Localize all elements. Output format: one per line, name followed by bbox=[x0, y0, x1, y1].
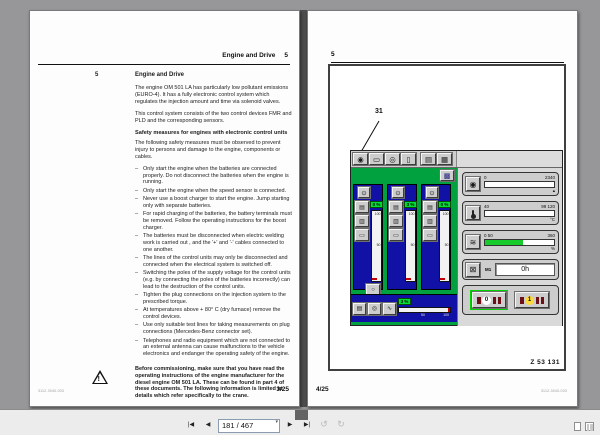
page-footer: 3112-3040-003 3/25 bbox=[38, 386, 289, 393]
bullet-item: –Only start the engine when the speed se… bbox=[135, 188, 293, 195]
bullet-item: –Never use a boost charger to start the … bbox=[135, 196, 293, 210]
hoist-icon: ◎ bbox=[385, 153, 400, 165]
control-column: ⊙ ▤ ▥ ▭ 0 % 100 bbox=[353, 184, 383, 290]
warning-icon: ! bbox=[92, 370, 108, 384]
mast-icon: ▤ bbox=[421, 153, 436, 165]
section-title: Engine and Drive bbox=[135, 72, 184, 78]
last-page-button[interactable]: ▶| bbox=[300, 417, 314, 431]
plug-icon bbox=[477, 297, 481, 304]
clutch-icon: ⊙ bbox=[426, 187, 438, 198]
clutch-icon: ⊙ bbox=[358, 187, 370, 198]
indicator-button-0: 0 bbox=[472, 292, 506, 308]
engine-speed-gauge: ◉ 0 2340 ▴ bbox=[462, 172, 559, 196]
bullet-item: –For rapid charging of the batteries, th… bbox=[135, 211, 293, 231]
plug-icon bbox=[541, 297, 545, 304]
oil-can-icon: ≋ bbox=[466, 235, 480, 249]
lever-icon: ∿ bbox=[383, 303, 396, 315]
vertical-scale: 100 50 bbox=[439, 210, 450, 282]
paragraph: The engine OM 501 LA has particularly lo… bbox=[135, 85, 293, 105]
chevron-down-icon[interactable]: ▾ bbox=[275, 419, 278, 425]
bullet-item: –Switching the poles of the supply volta… bbox=[135, 270, 293, 290]
menu-grid-icon: ▩ bbox=[440, 170, 454, 181]
running-header: Engine and Drive 5 bbox=[222, 52, 288, 59]
lever-icon: ▭ bbox=[355, 229, 369, 241]
control-column: ⊙ ▤ ▥ ▭ 0 % 100 bbox=[421, 184, 451, 290]
slew-icon: ◎ bbox=[368, 303, 381, 315]
lever-icon: ▭ bbox=[423, 229, 437, 241]
plug-icon bbox=[520, 297, 524, 304]
footer-doc-code: 3112-3040-003 bbox=[541, 389, 567, 393]
next-page-button[interactable]: ▶ bbox=[283, 417, 297, 431]
clutch-icon: ⊙ bbox=[392, 187, 404, 198]
bullet-item: –Tighten the plug connections on the inj… bbox=[135, 292, 293, 306]
percent-readout: 0 % bbox=[438, 201, 451, 208]
running-header-number: 5 bbox=[284, 52, 288, 59]
warning-block: ! Before commissioning, make sure that y… bbox=[135, 366, 293, 400]
indicator-button-1: 1 bbox=[515, 292, 549, 308]
bullet-item: –At temperatures above + 80° C (dry furn… bbox=[135, 307, 293, 321]
panel-toolbar: ◉ ▭ ◎ ▯ ▤ ▦ bbox=[351, 151, 457, 167]
vertical-scale: 100 50 bbox=[371, 210, 382, 282]
plug-icon bbox=[493, 297, 497, 304]
coolant-temperature-gauge: 40 99 120 °C bbox=[462, 201, 559, 225]
hours-label: M1 bbox=[485, 267, 491, 272]
footer-page-number: 3/25 bbox=[276, 386, 289, 393]
footer-doc-code: 3112-3040-003 bbox=[38, 389, 64, 393]
cab-icon: ▯ bbox=[401, 153, 416, 165]
winch-drum-icon: ▤ bbox=[423, 201, 437, 213]
page-left: Engine and Drive 5 5 Engine and Drive Th… bbox=[29, 10, 300, 407]
facing-pages-view-icon[interactable] bbox=[585, 422, 594, 431]
fuel-level-gauge: ≋ 0 50 360 % bbox=[462, 230, 559, 254]
safety-bullet-list: –Only start the engine when the batterie… bbox=[135, 166, 293, 358]
section-number: 5 bbox=[95, 72, 98, 79]
page-right: 5 31 ◉ ▭ ◎ ▯ ▤ ▦ ▩ bbox=[307, 10, 578, 407]
safety-heading: Safety measures for engines with electro… bbox=[135, 130, 293, 137]
page-navigation: |◀ ◀ ▾ ▶ ▶| ↺ ↻ bbox=[184, 415, 348, 433]
running-header-title: Engine and Drive bbox=[222, 52, 275, 59]
winch-drum-icon: ▥ bbox=[389, 215, 403, 227]
paragraph: The following safety measures must be ob… bbox=[135, 140, 293, 160]
winch-drum-icon: ▥ bbox=[355, 215, 369, 227]
winch-drum-icon: ▥ bbox=[423, 215, 437, 227]
running-header-number: 5 bbox=[331, 51, 335, 58]
previous-view-button[interactable]: ↺ bbox=[317, 417, 331, 431]
page-body: 5 Engine and Drive The engine OM 501 LA … bbox=[135, 72, 293, 405]
first-page-button[interactable]: |◀ bbox=[184, 417, 198, 431]
bullet-item: –Telephones and radio equipment which ar… bbox=[135, 338, 293, 358]
figure-callout-label: 31 bbox=[375, 108, 383, 115]
tachometer-icon: ◉ bbox=[353, 153, 368, 165]
engine-speed-icon: ◉ bbox=[466, 177, 480, 191]
bullet-item: –Only start the engine when the batterie… bbox=[135, 166, 293, 186]
panel-top-bar: ◉ ▭ ◎ ▯ ▤ ▦ bbox=[351, 151, 562, 168]
statusbar: |◀ ◀ ▾ ▶ ▶| ↺ ↻ bbox=[0, 409, 600, 435]
header-rule bbox=[331, 62, 564, 63]
percent-readout: 3 % bbox=[404, 201, 417, 208]
figure-box: 31 ◉ ▭ ◎ ▯ ▤ ▦ ▩ bbox=[328, 64, 566, 371]
winch-drum-icon: ▤ bbox=[389, 201, 403, 213]
footer-page-number: 4/25 bbox=[316, 386, 329, 393]
section-heading: 5 Engine and Drive bbox=[135, 72, 293, 79]
plug-icon bbox=[498, 297, 502, 304]
indicator-row: 0 1 bbox=[462, 285, 559, 315]
header-rule bbox=[38, 64, 290, 65]
panel-gauge-area: ◉ 0 2340 ▴ bbox=[457, 168, 562, 326]
hours-icon: ⊠ bbox=[466, 263, 480, 277]
page-footer: 4/25 3112-3040-003 bbox=[316, 386, 567, 393]
control-panel: ◉ ▭ ◎ ▯ ▤ ▦ ▩ ⊙ bbox=[350, 150, 563, 326]
panel-bottom-bar: ▤ ◎ ∿ 3 % 50 100 bbox=[351, 294, 457, 322]
next-view-button[interactable]: ↻ bbox=[334, 417, 348, 431]
bullet-item: –The batteries must be disconnected when… bbox=[135, 233, 293, 253]
single-page-view-icon[interactable] bbox=[574, 422, 581, 431]
hours-value: 0h bbox=[495, 263, 555, 276]
winch-icon: ▦ bbox=[437, 153, 452, 165]
prev-page-button[interactable]: ◀ bbox=[201, 417, 215, 431]
page-number-input[interactable] bbox=[218, 419, 280, 433]
winch-drum-icon: ▤ bbox=[355, 201, 369, 213]
plug-icon bbox=[536, 297, 540, 304]
paragraph: This control system consists of the two … bbox=[135, 111, 293, 125]
winch-drum-icon: ▤ bbox=[353, 303, 366, 315]
bullet-item: –The lines of the control units may only… bbox=[135, 255, 293, 269]
horizontal-scale: 3 % 50 100 bbox=[398, 298, 452, 320]
percent-readout: 3 % bbox=[398, 298, 411, 305]
carrier-icon: ▭ bbox=[369, 153, 384, 165]
warning-text: Before commissioning, make sure that you… bbox=[135, 366, 293, 400]
lever-icon: ▭ bbox=[389, 229, 403, 241]
panel-green-area: ▩ ⊙ ▤ ▥ ▭ bbox=[351, 168, 457, 326]
vertical-scale: 100 50 bbox=[405, 210, 416, 282]
bullet-item: –Use only suitable test lines for taking… bbox=[135, 322, 293, 336]
percent-readout: 0 % bbox=[370, 201, 383, 208]
figure-code: Z 53 131 bbox=[530, 359, 560, 366]
control-column: ⊙ ▤ ▥ ▭ 3 % 100 bbox=[387, 184, 417, 290]
operating-hours-display: ⊠ M1 0h bbox=[462, 259, 559, 280]
thermometer-icon bbox=[466, 206, 480, 220]
